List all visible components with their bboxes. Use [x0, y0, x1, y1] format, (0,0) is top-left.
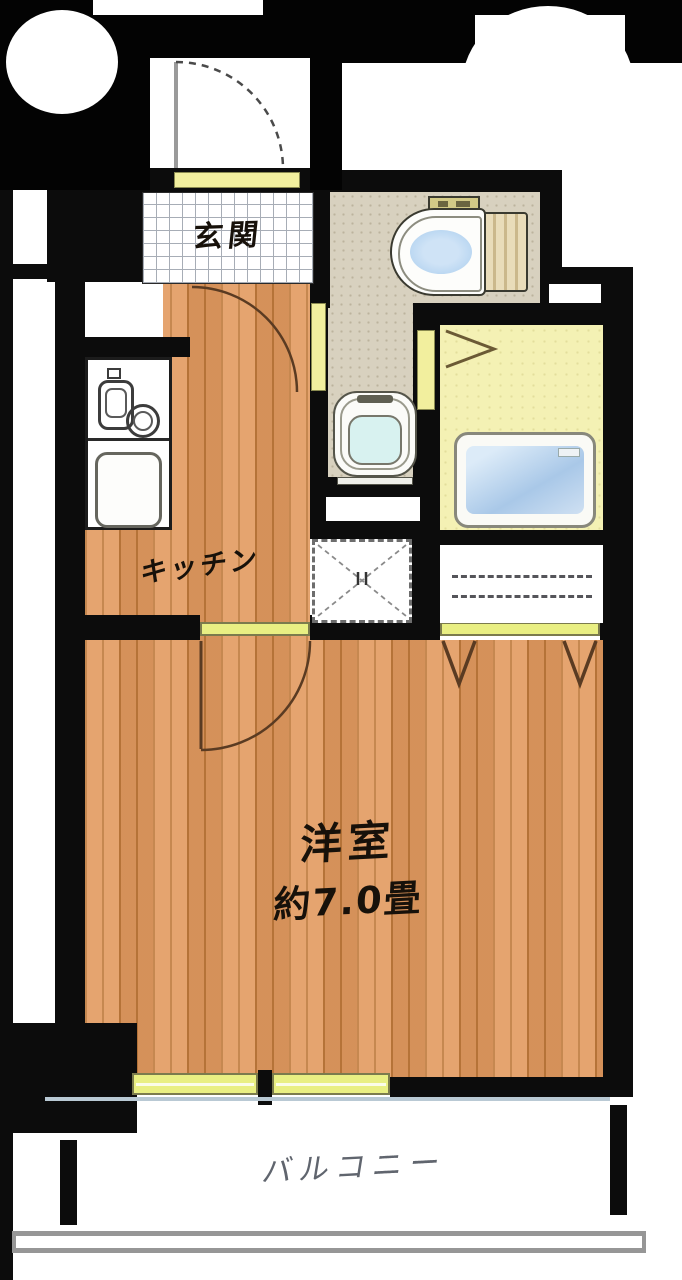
floorplan: 玄関 キッチン 洋室 約7.0畳 バルコニー [0, 0, 682, 1280]
toilet-top-wall [322, 170, 562, 192]
kitchen-stub-wall [85, 337, 190, 357]
balcony-window-left [132, 1073, 258, 1095]
closet [440, 545, 603, 623]
closet-top-wall [412, 530, 633, 545]
kitchen-sink-icon [95, 452, 162, 528]
small-window [549, 284, 601, 304]
top-backdrop [625, 0, 682, 63]
top-backdrop [342, 0, 475, 63]
masked-notch [93, 0, 263, 15]
bathtub-icon [454, 432, 596, 528]
washbasin-icon [333, 391, 417, 485]
stove-icon [88, 360, 169, 438]
bathroom-door [417, 330, 435, 410]
toilet-water [410, 230, 472, 274]
kitchen-counter [85, 357, 172, 530]
toilet-tank [480, 212, 528, 292]
masked-blob [6, 10, 118, 114]
left-wall-mass [47, 190, 142, 282]
main-room-door-opening [200, 622, 310, 636]
washbasin-bowl [348, 415, 402, 465]
genkan-label: 玄関 [154, 217, 302, 255]
masked-blob [462, 6, 634, 166]
washing-machine-pad-icon [312, 539, 412, 623]
right-outer-wall [603, 267, 633, 1097]
entrance-door-threshold [174, 172, 300, 188]
washbasin-faucet [357, 395, 393, 403]
toilet-icon [388, 196, 532, 296]
closet-hanger-rod [452, 575, 592, 578]
bathtub-faucet [558, 448, 580, 457]
balcony-ceiling-line [45, 1097, 610, 1101]
balcony-right-stub [610, 1105, 627, 1215]
balcony-label: バルコニー [222, 1135, 489, 1193]
balcony-railing [12, 1231, 646, 1253]
balcony-left-stub [60, 1140, 77, 1225]
mid-wall-left [85, 615, 200, 640]
corner-column [0, 1023, 137, 1133]
bottom-wall-right [390, 1077, 633, 1097]
balcony-window-right [272, 1073, 390, 1095]
top-backdrop [310, 0, 342, 190]
fridge-nook [85, 282, 163, 337]
left-outer-wall [55, 282, 85, 1030]
washroom-door [311, 303, 326, 391]
entrance-door-swing-icon [176, 62, 283, 169]
toilet-bowl [390, 208, 486, 296]
washbasin-wall-opening [326, 497, 420, 521]
closet-hanger-rod [452, 595, 592, 598]
bathroom-top-wall [413, 303, 633, 325]
closet-opening [440, 622, 600, 636]
mid-wall-right [600, 615, 633, 640]
